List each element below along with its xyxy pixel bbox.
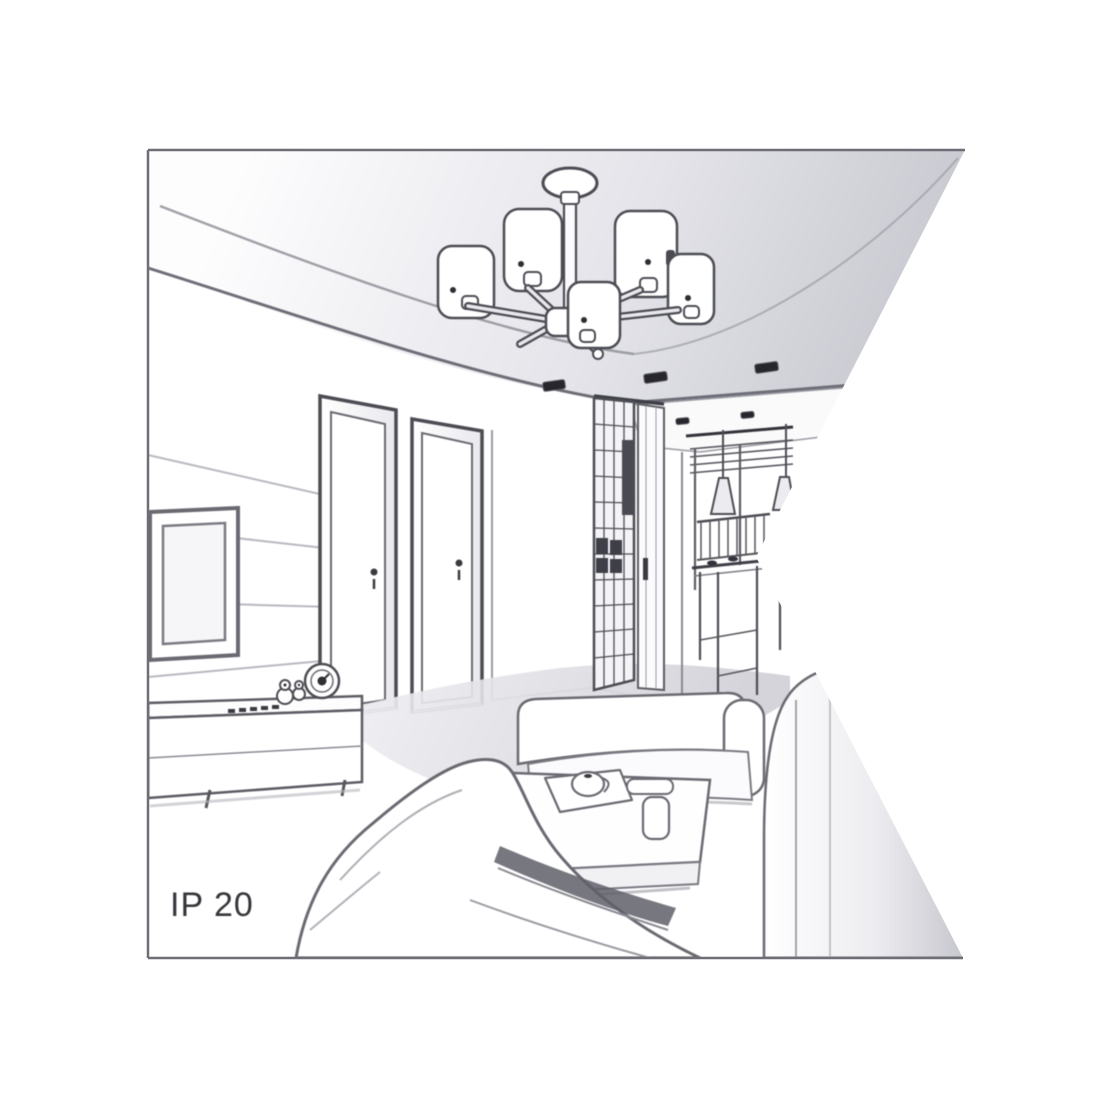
door-handle xyxy=(456,560,463,567)
spotlight-icon xyxy=(676,417,690,424)
tv-frame-inner xyxy=(163,523,225,644)
chandelier-shade-front xyxy=(568,282,620,348)
wardrobe-lattice xyxy=(594,396,664,690)
mug xyxy=(643,797,669,839)
ip-rating-text: IP 20 xyxy=(170,886,254,924)
plate xyxy=(627,779,673,794)
door-handle xyxy=(371,569,378,576)
room-sketch-svg: IP 20 xyxy=(0,0,1100,1100)
wardrobe-mirror xyxy=(622,440,633,515)
spotlight-icon xyxy=(741,411,755,418)
alarm-clock xyxy=(305,664,339,698)
wardrobe-handle xyxy=(643,558,648,580)
interior-door-right xyxy=(412,419,482,712)
room-illustration: IP 20 xyxy=(0,0,1100,1100)
